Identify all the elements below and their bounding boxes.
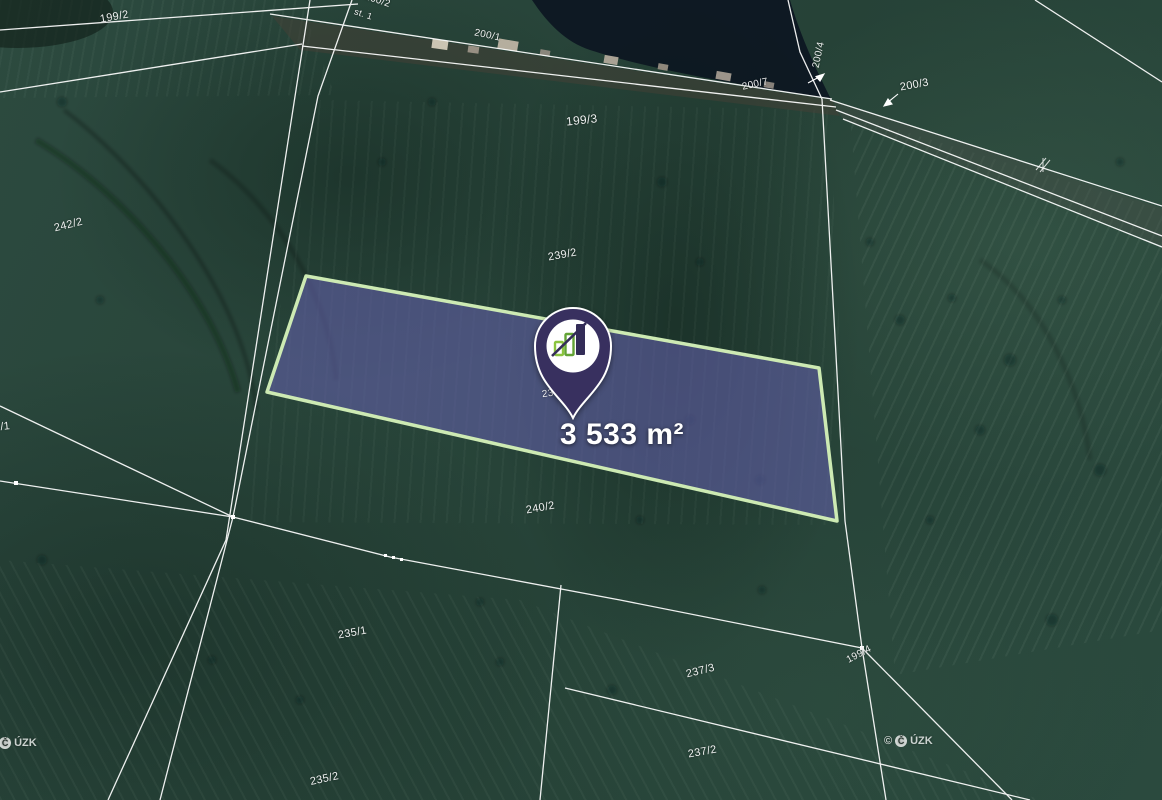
satellite-map-canvas[interactable]: 239 3 533 m² ©ČÚZK ©ČÚZK 199/2160/2st. 1… [0, 0, 1162, 800]
location-pin[interactable] [520, 300, 630, 425]
dark-field-corner [0, 0, 113, 48]
road-surface [832, 100, 1162, 246]
